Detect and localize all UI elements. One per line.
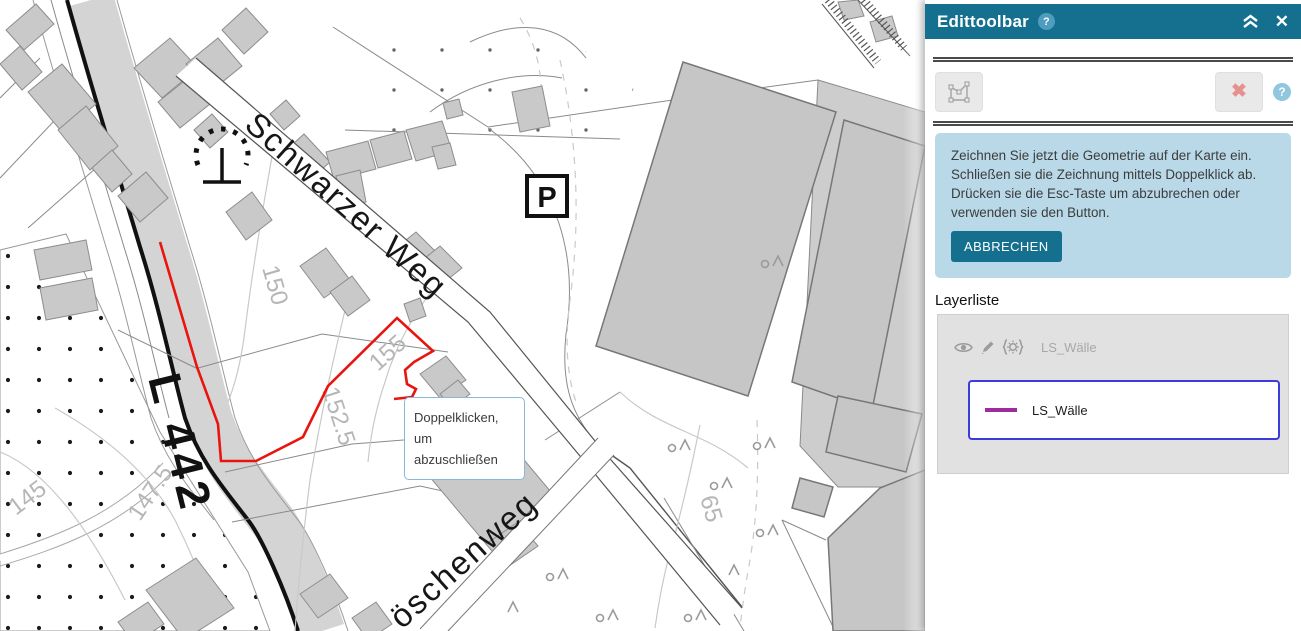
close-icon[interactable]: ✕: [1275, 12, 1289, 32]
contour-label-65: 65: [694, 492, 727, 525]
layer-list-box: LS_Wälle LS_Wälle: [937, 314, 1289, 474]
visibility-eye-icon[interactable]: [954, 341, 973, 354]
panel-header: Edittoolbar ? ✕: [925, 4, 1301, 39]
edit-pencil-icon[interactable]: [980, 340, 995, 355]
map-canvas[interactable]: P Schwarzer Weg öschenweg L 442 145 147.…: [0, 0, 925, 631]
tooltip-line: Doppelklicken,: [414, 407, 518, 428]
tooltip-line: um: [414, 428, 518, 449]
map-svg: P Schwarzer Weg öschenweg L 442 145 147.…: [0, 0, 925, 631]
layer-legend-box[interactable]: LS_Wälle: [968, 380, 1280, 440]
polygon-icon: [946, 79, 972, 105]
layer-row: LS_Wälle: [954, 339, 1274, 355]
tooltip-line: abzuschließen: [414, 449, 518, 470]
contour-label-152-5: 152.5: [316, 384, 360, 449]
parking-icon: P: [527, 176, 567, 216]
cancel-drawing-button[interactable]: ✖: [1215, 72, 1263, 112]
divider: [933, 121, 1293, 126]
instruction-line: Schließen sie die Zeichnung mittels Dopp…: [951, 165, 1275, 184]
layer-name-label: LS_Wälle: [1041, 340, 1097, 355]
draw-polygon-button[interactable]: [935, 72, 983, 112]
instruction-line: Zeichnen Sie jetzt die Geometrie auf der…: [951, 146, 1275, 165]
toolbar-help-icon[interactable]: ?: [1273, 83, 1291, 101]
parking-letter: P: [537, 182, 556, 214]
edit-tool-row: ✖ ?: [933, 62, 1293, 121]
collapse-icon[interactable]: [1242, 14, 1259, 29]
legend-line-swatch: [985, 408, 1017, 412]
cancel-x-icon: ✖: [1231, 80, 1247, 103]
panel-title: Edittoolbar: [937, 12, 1029, 32]
instruction-line: verwenden sie den Button.: [951, 203, 1275, 222]
legend-layer-label: LS_Wälle: [1032, 403, 1088, 418]
map-edge-shadow: [903, 0, 925, 631]
style-gear-icon[interactable]: [1002, 339, 1024, 355]
draw-tooltip: Doppelklicken, um abzuschließen: [404, 397, 525, 480]
edit-toolbar-panel: Edittoolbar ? ✕: [925, 0, 1301, 631]
header-help-icon[interactable]: ?: [1038, 13, 1055, 30]
abort-button[interactable]: ABBRECHEN: [951, 231, 1062, 262]
panel-body: ✖ ? Zeichnen Sie jetzt die Geometrie auf…: [925, 39, 1301, 631]
layer-list-title: Layerliste: [935, 292, 1291, 309]
app-screen: P Schwarzer Weg öschenweg L 442 145 147.…: [0, 0, 1301, 631]
instruction-line: Drücken sie die Esc-Taste um abzubrechen…: [951, 184, 1275, 203]
draw-instructions-box: Zeichnen Sie jetzt die Geometrie auf der…: [935, 133, 1291, 278]
factory-buildings: [596, 62, 925, 631]
contour-label-150: 150: [256, 262, 293, 308]
